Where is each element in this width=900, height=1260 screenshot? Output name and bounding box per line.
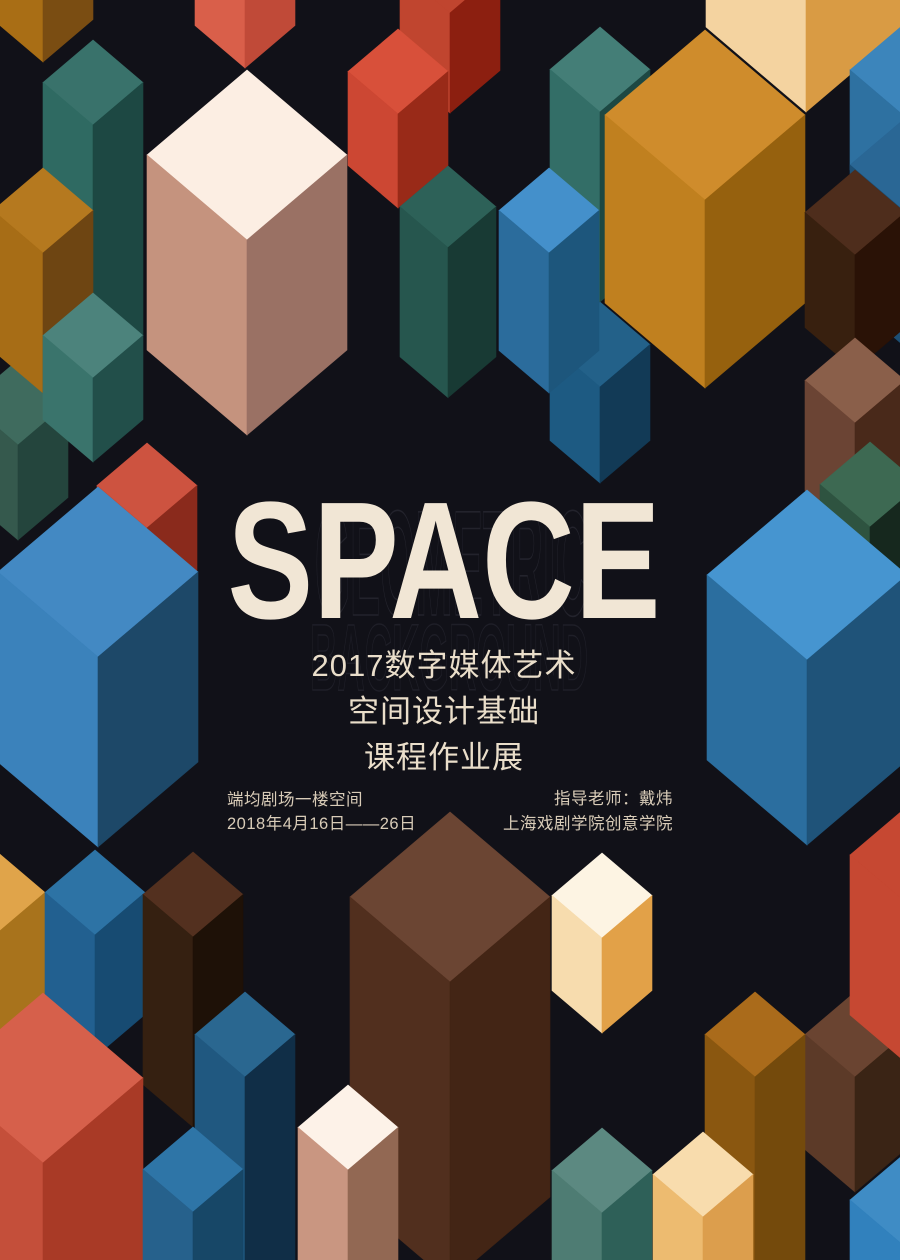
cube-blue-center — [499, 168, 599, 393]
poster-page: { "poster": { "title": "SPACE", "ghost_l… — [0, 0, 900, 1260]
subtitle-line-3: 课程作业展 — [364, 740, 524, 775]
school-line: 上海戏剧学院创意学院 — [503, 814, 673, 833]
date-line: 2018年4月16日——26日 — [227, 814, 416, 833]
cube-cream-big — [147, 70, 347, 435]
cube-red-top-center-left-face — [195, 0, 245, 68]
poster-title: SPACE — [228, 468, 661, 654]
subtitle-block: 2017数字媒体艺术 空间设计基础 课程作业展 — [312, 648, 577, 775]
cube-teal-bottom-center — [552, 1128, 652, 1260]
cube-red-top-center-right-face — [245, 0, 295, 68]
cube-teal-mid-upper — [400, 166, 496, 398]
info-block-left: 端均剧场一楼空间 2018年4月16日——26日 — [227, 790, 416, 833]
advisor-line: 指导老师：戴炜 — [554, 789, 673, 808]
cube-cream-gold-small — [552, 853, 652, 1033]
info-block-right: 指导老师：戴炜 上海戏剧学院创意学院 — [503, 789, 673, 833]
subtitle-line-2: 空间设计基础 — [348, 694, 540, 729]
cube-orange-left-top-left-face — [0, 0, 43, 62]
cube-red-top-center — [195, 0, 295, 68]
poster-scene: GEOMETRIC BACKGROUND SPACE 2017数字媒体艺术 空间… — [0, 0, 900, 1260]
venue-line: 端均剧场一楼空间 — [227, 790, 363, 809]
subtitle-line-1: 2017数字媒体艺术 — [312, 648, 577, 683]
poster-canvas: GEOMETRIC BACKGROUND SPACE 2017数字媒体艺术 空间… — [0, 0, 900, 1260]
cube-red-top-back-right-face — [450, 0, 500, 113]
